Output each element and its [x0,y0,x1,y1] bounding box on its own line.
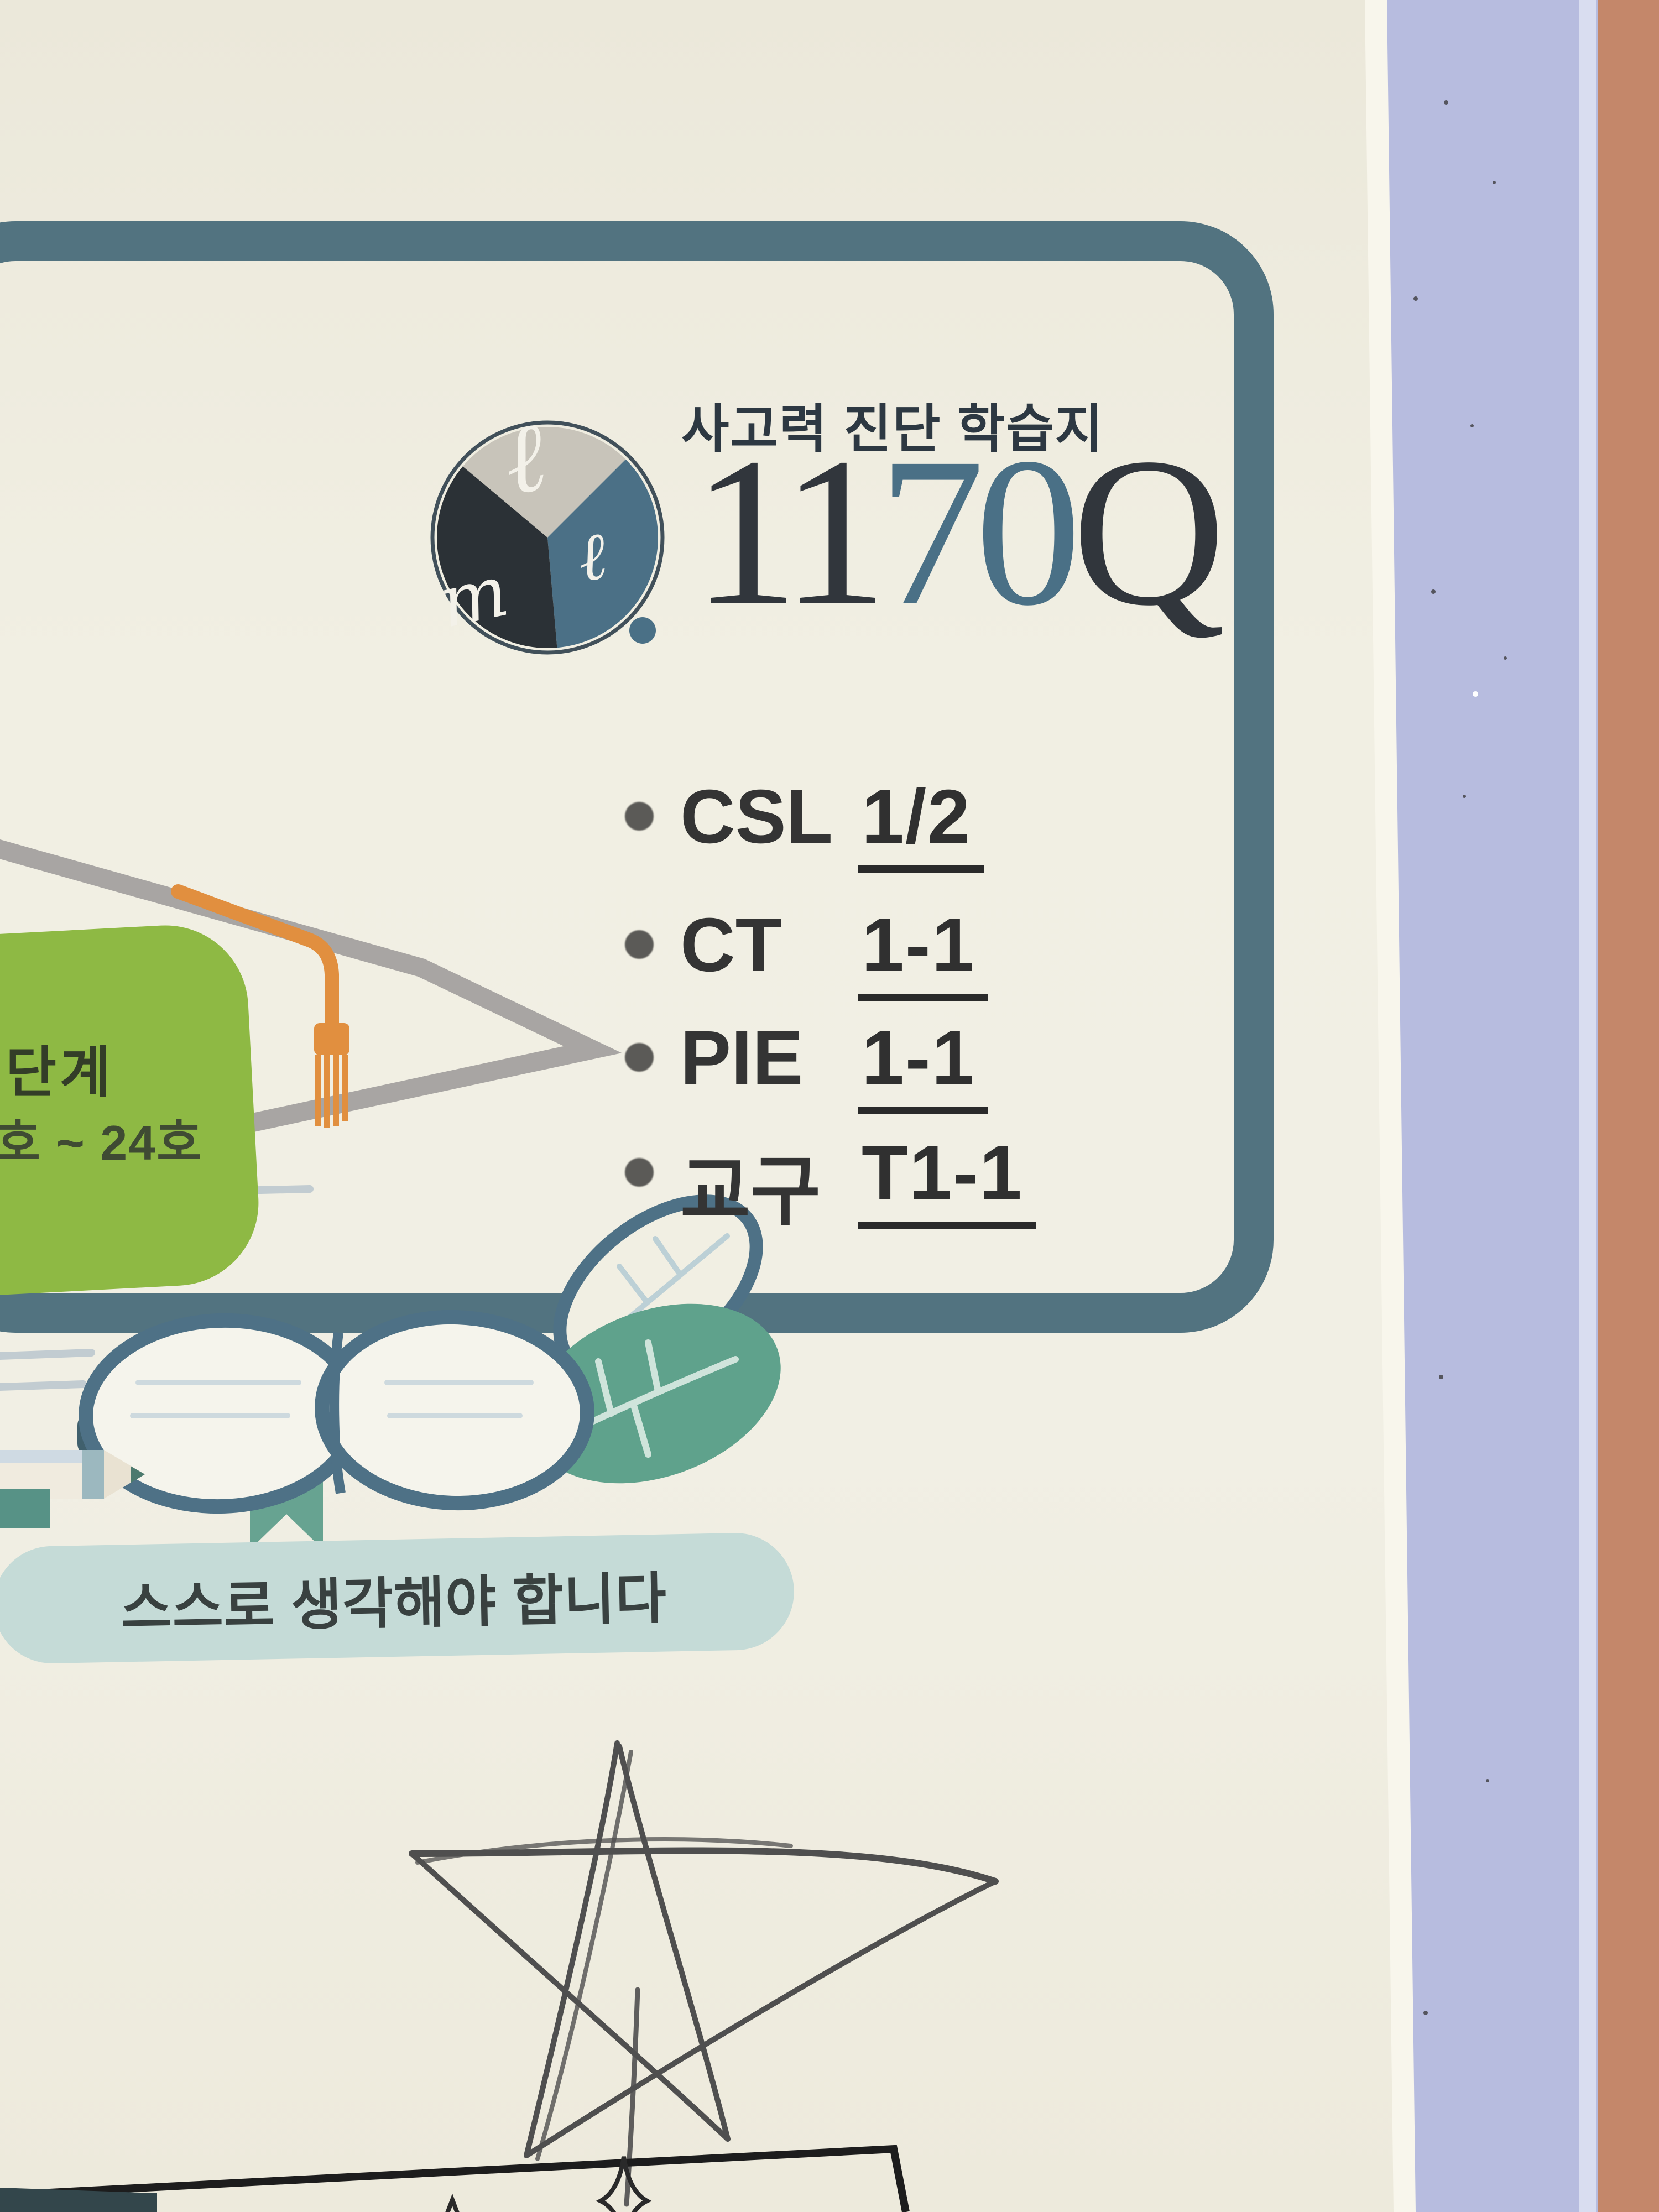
logo-script-mark-bottom: m [434,556,514,639]
brand-title-part1: 11 [692,414,878,650]
bullet-icon [625,802,654,831]
list-item-label: CSL [680,773,858,861]
list-item-label: CT [680,901,858,989]
bullet-icon [625,1158,654,1187]
list-item-value: T1-1 [858,1129,1036,1229]
level-badge-range-label: 호 ~ 24호 [0,1104,202,1174]
list-item: CSL 1/2 [625,773,984,873]
brand-title-part3: Q [1072,414,1216,650]
folder-edge-highlight [1579,0,1596,2212]
list-item: PIE 1-1 [625,1014,988,1114]
list-item-value: 1-1 [858,1014,988,1114]
level-badge-stage-label: 단계 [6,1027,114,1108]
slogan-banner: 스스로 생각해야 합니다 [0,1532,795,1665]
brand-title-part2: 70 [878,414,1072,650]
brand-title: 1170Q [692,426,1216,639]
slogan-text: 스스로 생각해야 합니다 [120,1553,667,1644]
logo-period-dot [629,617,656,644]
photographed-workbook-cover: 사고력 진단 학습지 1170Q ℓ ℓ m CSL 1/2 CT 1-1 PI… [0,0,1659,2212]
list-item-value: 1/2 [858,773,984,873]
list-item-label: PIE [680,1014,858,1102]
bullet-icon [625,1043,654,1072]
list-item: CT 1-1 [625,901,988,1001]
white-speck [1473,691,1478,697]
list-item-label: 교구 [680,1129,858,1240]
bullet-icon [625,930,654,959]
book-right-page [319,1313,590,1508]
list-item: 교구 T1-1 [625,1129,1036,1240]
list-item-value: 1-1 [858,901,988,1001]
